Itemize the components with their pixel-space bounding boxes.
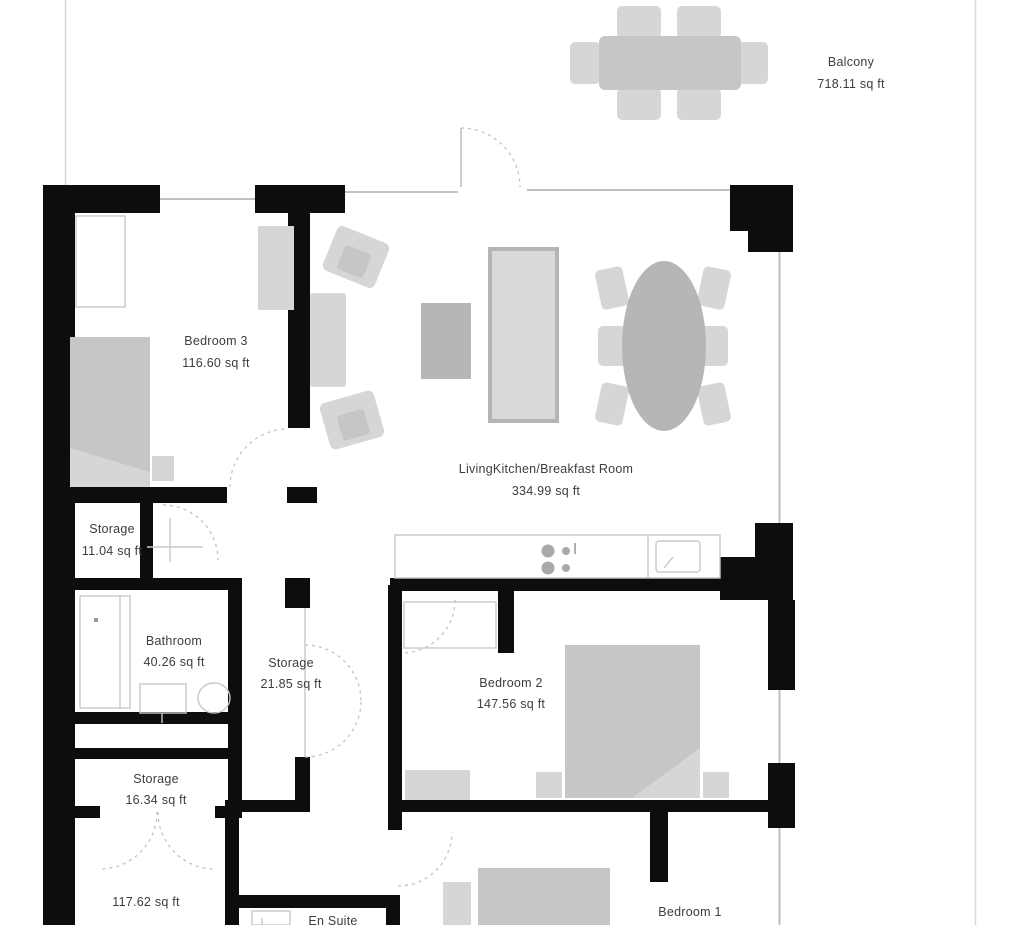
door-arc (461, 128, 520, 187)
entry-nook (404, 602, 496, 648)
dining-table (622, 261, 706, 431)
nightstand (536, 772, 562, 798)
floor-plan-drawing: Balcony 718.11 sq ft Bedroom 3 116.60 sq… (0, 0, 1026, 925)
wall (748, 231, 793, 252)
washbasin (252, 911, 290, 925)
dining-chair (594, 382, 630, 427)
balcony-chair (617, 88, 661, 120)
door-arc (305, 701, 361, 757)
hob (542, 543, 576, 575)
balcony-chair (677, 88, 721, 120)
dining-chair (594, 266, 630, 311)
balcony-chair (617, 6, 661, 38)
armchair (321, 224, 391, 289)
storage2-label: Storage (268, 656, 314, 670)
dining-chair (696, 382, 732, 427)
wall (390, 578, 720, 591)
bedroom3-furniture (70, 216, 294, 487)
sofa (310, 293, 346, 387)
ensuite-label: En Suite (308, 914, 357, 925)
wall (768, 812, 795, 828)
wardrobe (258, 226, 294, 310)
living-room-furniture (310, 224, 732, 451)
nightstand (152, 456, 174, 481)
wall (43, 806, 100, 818)
door-arc (100, 812, 157, 869)
wall (720, 557, 755, 600)
wall (75, 578, 242, 590)
balcony-dining-set (570, 6, 768, 120)
storage3-area: 16.34 sq ft (125, 793, 186, 807)
wall (498, 585, 514, 653)
storage1-area: 11.04 sq ft (82, 544, 142, 558)
hallway-area: 117.62 sq ft (112, 895, 180, 909)
wall (285, 578, 310, 608)
bedroom2-furniture (405, 645, 729, 800)
bathroom-area: 40.26 sq ft (143, 655, 204, 669)
armchair (318, 389, 385, 451)
nightstand (443, 882, 471, 925)
wall (386, 895, 400, 925)
bedroom2-label: Bedroom 2 (479, 676, 542, 690)
balcony-table (599, 36, 741, 90)
bedroom3-area: 116.60 sq ft (182, 356, 250, 370)
window-bay (76, 216, 125, 307)
dining-chair (598, 326, 626, 366)
toilet (198, 683, 230, 713)
wall (43, 748, 242, 759)
wall (140, 490, 153, 580)
door-arc (230, 429, 288, 487)
balcony-chair (738, 42, 768, 84)
wall (650, 812, 668, 882)
balcony-chair (570, 42, 600, 84)
bedroom3-label: Bedroom 3 (184, 334, 247, 348)
storage3-label: Storage (133, 772, 179, 786)
wall (388, 800, 795, 812)
floor-plan: Balcony 718.11 sq ft Bedroom 3 116.60 sq… (0, 0, 1026, 925)
door-arc (398, 832, 452, 886)
wall (237, 895, 400, 908)
storage2-area: 21.85 sq ft (260, 677, 321, 691)
dresser (405, 770, 470, 800)
wall (228, 712, 242, 812)
wall (287, 487, 317, 503)
kitchen-counter (395, 535, 720, 578)
door-arc (402, 600, 455, 653)
balcony-area: 718.11 sq ft (817, 77, 885, 91)
living-label: LivingKitchen/Breakfast Room (459, 462, 633, 476)
balcony-chair (677, 6, 721, 38)
kitchen-island (490, 249, 557, 421)
coffee-table (421, 303, 471, 379)
bedroom1-label: Bedroom 1 (658, 905, 721, 919)
wall (768, 600, 795, 690)
wall (730, 185, 793, 231)
wall (255, 185, 345, 213)
ensuite-fixtures (252, 911, 290, 925)
storage1-label: Storage (89, 522, 135, 536)
bed (478, 868, 610, 925)
wall (43, 712, 242, 724)
wall (388, 585, 402, 830)
balcony-label: Balcony (828, 55, 875, 69)
kitchen-sink (656, 541, 700, 572)
washbasin (140, 684, 186, 713)
bedroom2-area: 147.56 sq ft (477, 697, 546, 711)
door-arc (163, 505, 218, 560)
wall (225, 800, 239, 925)
nightstand (703, 772, 729, 798)
bathroom-label: Bathroom (146, 634, 202, 648)
door-arc (305, 645, 361, 701)
wall (755, 523, 793, 600)
living-area: 334.99 sq ft (512, 484, 581, 498)
door-arc (158, 812, 215, 869)
shower (80, 596, 130, 708)
bedroom1-furniture (443, 868, 610, 925)
dining-chair (696, 266, 732, 311)
shower-drain (94, 618, 98, 622)
